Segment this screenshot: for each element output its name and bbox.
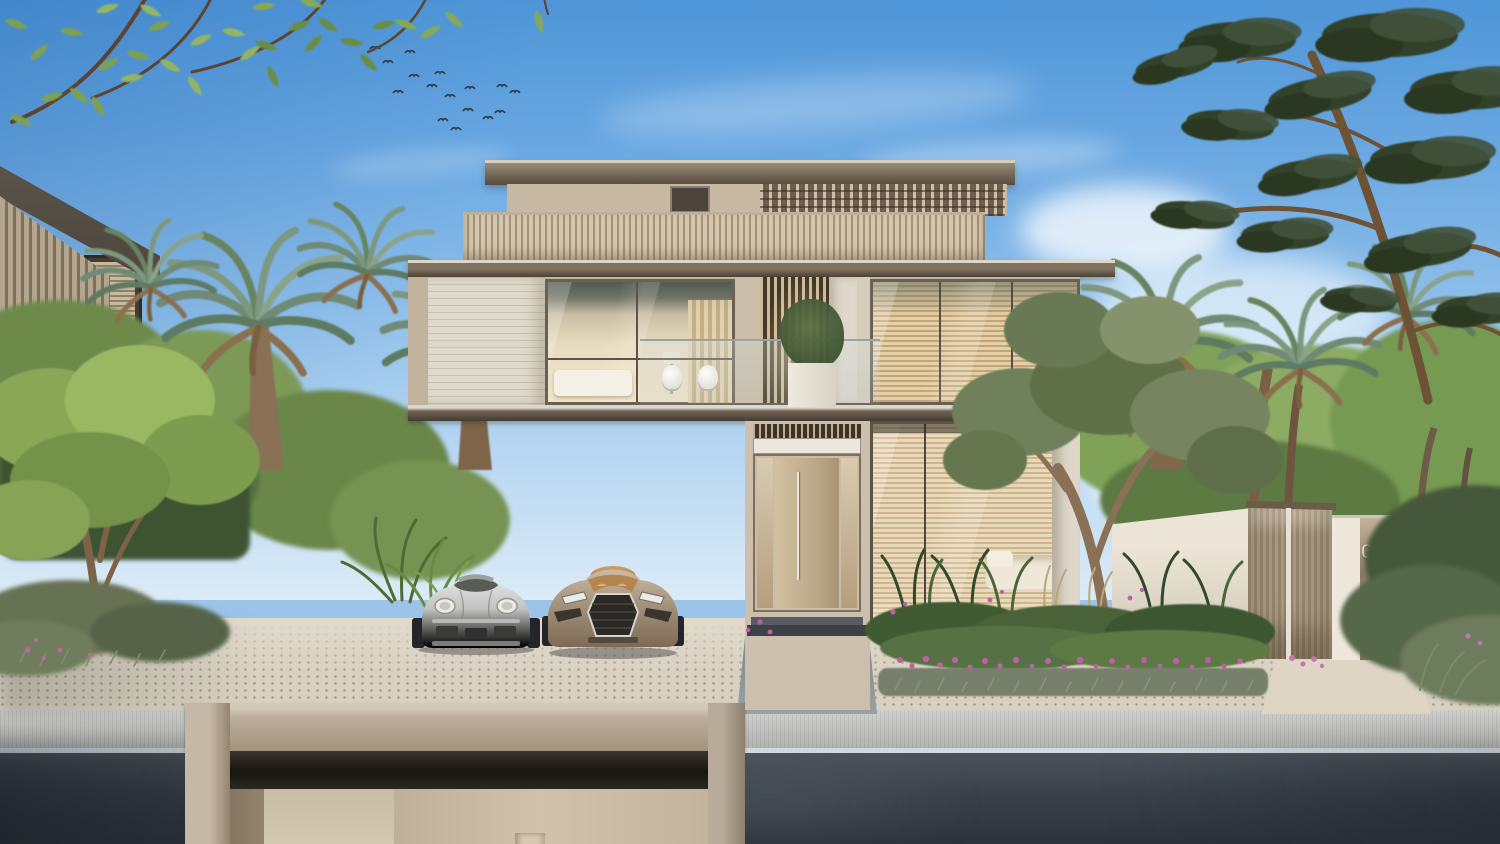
architectural-render-scene: 01 [0, 0, 1500, 844]
overhanging-branch [0, 0, 1500, 844]
